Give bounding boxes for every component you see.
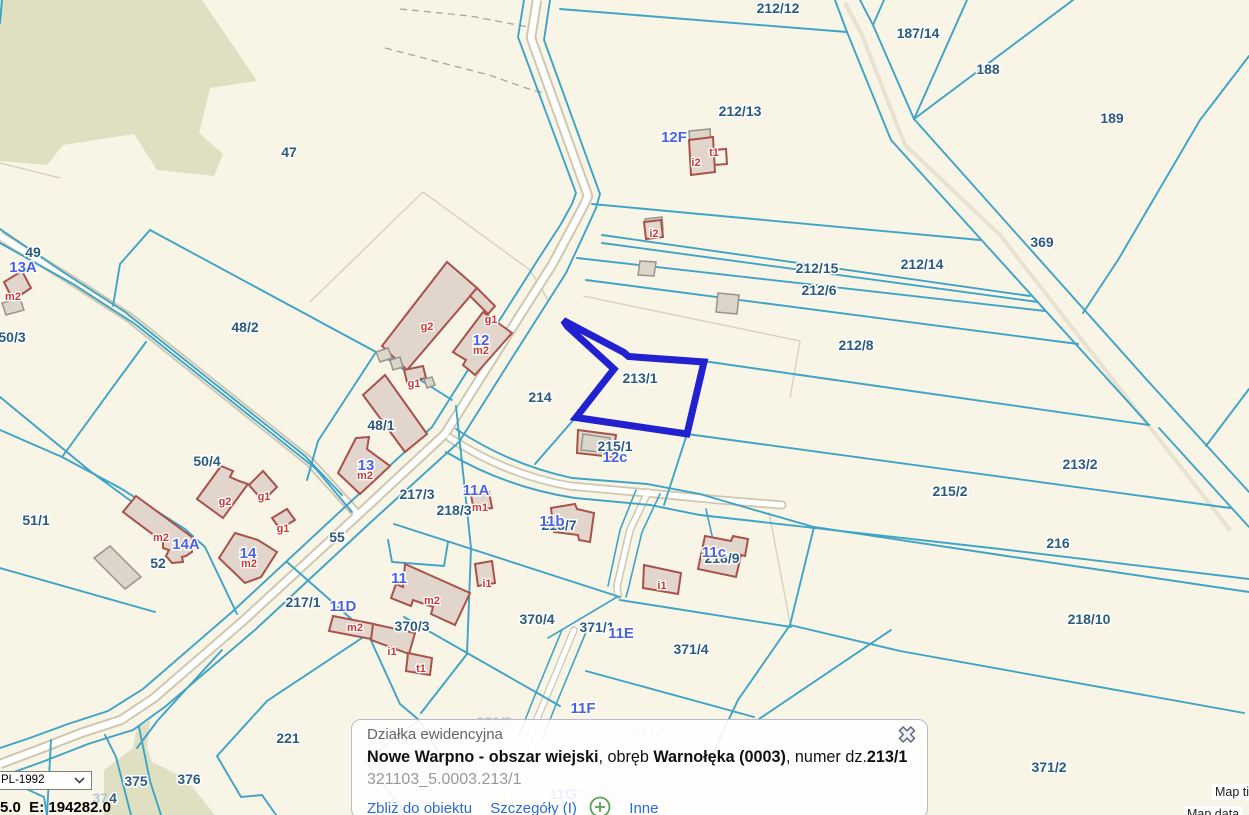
svg-text:51/1: 51/1 (22, 512, 49, 528)
svg-text:t1: t1 (416, 663, 426, 675)
svg-text:12F: 12F (661, 129, 687, 146)
svg-text:217/1: 217/1 (285, 594, 320, 610)
svg-text:g2: g2 (219, 496, 232, 508)
svg-text:11b: 11b (539, 513, 564, 530)
svg-text:188: 188 (976, 61, 1000, 77)
svg-text:212/14: 212/14 (901, 256, 944, 272)
svg-text:216: 216 (1046, 535, 1070, 551)
svg-text:i1: i1 (657, 580, 666, 592)
svg-text:m2: m2 (241, 558, 257, 570)
svg-text:221: 221 (276, 730, 300, 746)
svg-text:11E: 11E (608, 625, 634, 642)
svg-text:m1: m1 (472, 502, 488, 514)
svg-text:371/2: 371/2 (1031, 759, 1066, 775)
svg-text:14A: 14A (172, 536, 200, 553)
svg-text:55: 55 (329, 529, 345, 545)
svg-text:215/2: 215/2 (932, 483, 967, 499)
svg-text:g1: g1 (258, 491, 271, 503)
svg-text:212/8: 212/8 (838, 337, 873, 353)
svg-text:m2: m2 (357, 470, 373, 482)
svg-text:212/12: 212/12 (757, 0, 800, 16)
svg-text:212/6: 212/6 (801, 282, 836, 298)
svg-text:217/3: 217/3 (399, 486, 434, 502)
svg-text:11A: 11A (463, 482, 490, 499)
svg-text:370/4: 370/4 (519, 611, 554, 627)
svg-text:g2: g2 (421, 321, 434, 333)
svg-text:11F: 11F (570, 700, 595, 717)
svg-text:i1: i1 (482, 578, 491, 590)
svg-text:13A: 13A (9, 259, 37, 276)
svg-text:t1: t1 (709, 147, 719, 159)
svg-text:m2: m2 (5, 291, 21, 303)
svg-text:213/1: 213/1 (622, 370, 657, 386)
svg-text:212/13: 212/13 (719, 103, 762, 119)
svg-text:i2: i2 (691, 157, 700, 169)
svg-text:371/4: 371/4 (673, 641, 708, 657)
svg-text:g1: g1 (485, 314, 498, 326)
svg-text:50/3: 50/3 (0, 329, 26, 345)
svg-text:m2: m2 (153, 532, 169, 544)
svg-text:187/14: 187/14 (897, 25, 940, 41)
svg-text:214: 214 (528, 389, 552, 405)
svg-text:48/2: 48/2 (231, 319, 258, 335)
svg-text:48/1: 48/1 (367, 417, 394, 433)
svg-text:g1: g1 (277, 523, 290, 535)
svg-text:i1: i1 (387, 646, 396, 658)
svg-text:218/10: 218/10 (1068, 611, 1111, 627)
svg-text:49: 49 (25, 244, 41, 260)
svg-text:218/3: 218/3 (436, 502, 471, 518)
svg-text:g1: g1 (408, 378, 421, 390)
svg-text:12c: 12c (602, 449, 627, 466)
svg-text:11: 11 (391, 570, 407, 587)
svg-text:375: 375 (124, 773, 148, 789)
svg-text:376: 376 (177, 771, 201, 787)
svg-text:50/4: 50/4 (193, 453, 220, 469)
svg-text:52: 52 (150, 555, 166, 571)
svg-text:370/3: 370/3 (394, 618, 429, 634)
svg-text:m2: m2 (347, 622, 363, 634)
svg-text:47: 47 (281, 144, 297, 160)
svg-text:m2: m2 (424, 595, 440, 607)
svg-text:189: 189 (1100, 110, 1124, 126)
svg-text:m2: m2 (473, 345, 489, 357)
svg-text:369: 369 (1030, 234, 1054, 250)
svg-text:213/2: 213/2 (1062, 456, 1097, 472)
svg-text:212/15: 212/15 (796, 260, 839, 276)
svg-text:i2: i2 (649, 228, 658, 240)
svg-text:11c: 11c (702, 544, 726, 561)
svg-text:11D: 11D (330, 598, 357, 615)
